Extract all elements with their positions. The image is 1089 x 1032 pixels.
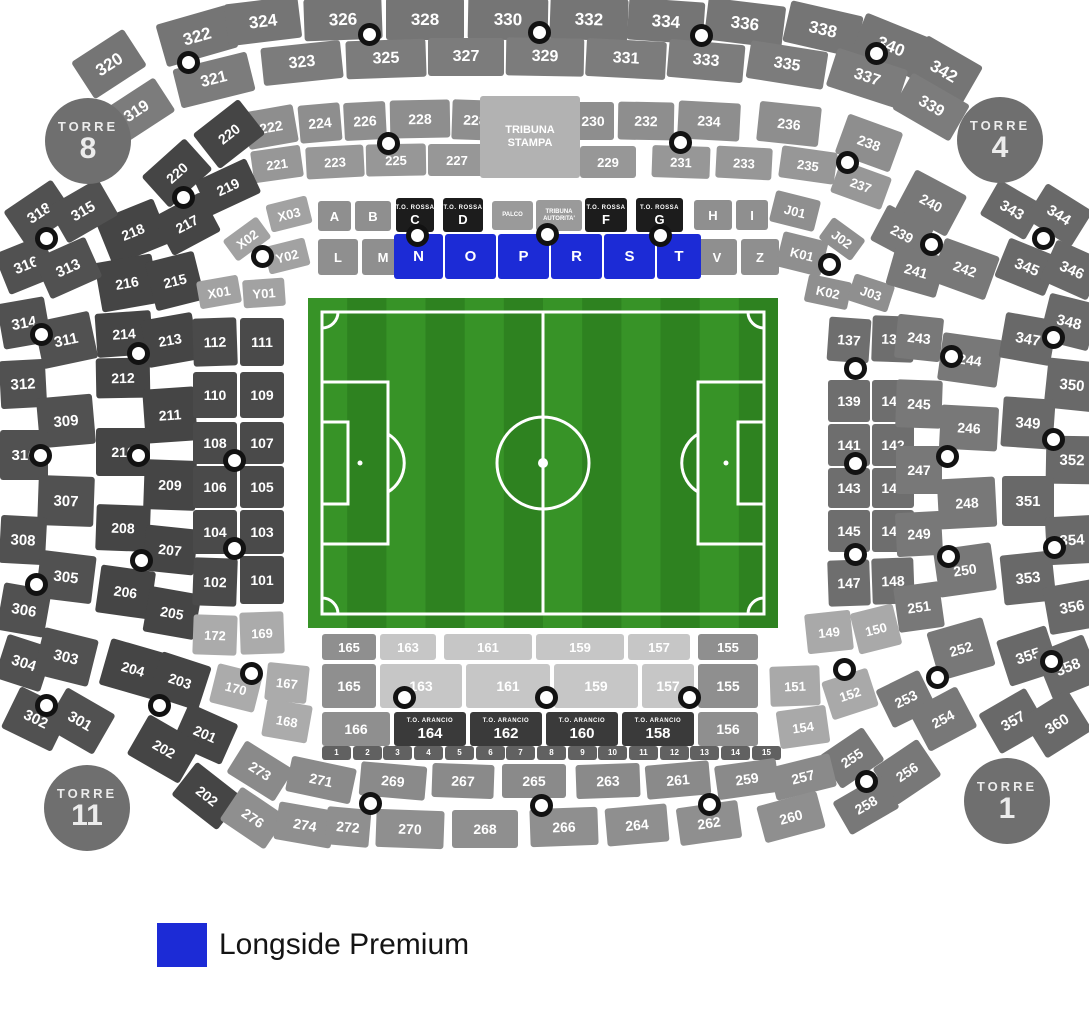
section-165[interactable]: 165 [322, 664, 376, 708]
section-o[interactable]: O [445, 234, 496, 279]
section-111[interactable]: 111 [240, 318, 284, 366]
section-143[interactable]: 143 [828, 468, 870, 508]
section-2[interactable]: 2 [353, 746, 382, 760]
seat-view-marker[interactable] [698, 793, 721, 816]
seat-view-marker[interactable] [936, 445, 959, 468]
seat-view-marker[interactable] [1042, 326, 1065, 349]
section-151[interactable]: 151 [769, 665, 820, 707]
section-167[interactable]: 167 [264, 662, 310, 704]
seat-view-marker[interactable] [844, 452, 867, 475]
seat-view-marker[interactable] [127, 444, 150, 467]
torre-8-label: TORRE8 [45, 98, 131, 184]
legend-label: Longside Premium [219, 928, 469, 962]
section-243[interactable]: 243 [894, 314, 944, 363]
section-112[interactable]: 112 [192, 317, 238, 367]
seat-view-marker[interactable] [148, 694, 171, 717]
section-215[interactable]: 215 [145, 251, 206, 312]
seat-view-marker[interactable] [1042, 428, 1065, 451]
section-160[interactable]: T.O. ARANCIO160 [546, 712, 618, 746]
section-v[interactable]: V [697, 239, 737, 275]
section-15[interactable]: 15 [752, 746, 781, 760]
section-271[interactable]: 271 [285, 756, 357, 805]
section-h[interactable]: H [694, 200, 732, 230]
section-235[interactable]: 235 [778, 145, 838, 184]
seat-view-marker[interactable] [844, 543, 867, 566]
seat-view-marker[interactable] [35, 227, 58, 250]
legend: Longside Premium [157, 922, 469, 968]
section-12[interactable]: 12 [660, 746, 689, 760]
section-229[interactable]: 229 [580, 146, 636, 178]
torre-4-label: TORRE4 [957, 97, 1043, 183]
section-palco[interactable]: PALCO [492, 201, 533, 230]
section-356[interactable]: 356 [1042, 579, 1089, 635]
section-325[interactable]: 325 [345, 39, 426, 80]
section-9[interactable]: 9 [568, 746, 597, 760]
seat-view-marker[interactable] [920, 233, 943, 256]
section-236[interactable]: 236 [756, 101, 822, 147]
seat-view-marker[interactable] [358, 23, 381, 46]
section-224[interactable]: 224 [297, 102, 342, 144]
seat-view-marker[interactable] [855, 770, 878, 793]
section-211[interactable]: 211 [142, 386, 198, 443]
section-245[interactable]: 245 [895, 379, 943, 429]
stadium-seating-map: 3203223243263283303323343363383403423193… [0, 0, 1089, 1032]
section-208[interactable]: 208 [95, 504, 151, 552]
section-147[interactable]: 147 [827, 559, 871, 606]
seat-view-marker[interactable] [1032, 227, 1055, 250]
section-4[interactable]: 4 [414, 746, 443, 760]
seat-view-marker[interactable] [30, 323, 53, 346]
section-263[interactable]: 263 [575, 763, 640, 799]
section-157[interactable]: 157 [628, 634, 690, 660]
section-328[interactable]: 328 [386, 0, 464, 40]
section-332[interactable]: 332 [549, 0, 628, 41]
stadium-map: 3203223243263283303323343363383403423193… [0, 0, 1089, 880]
section-158[interactable]: T.O. ARANCIO158 [622, 712, 694, 746]
section-13[interactable]: 13 [690, 746, 719, 760]
section-b[interactable]: B [355, 201, 391, 231]
section-323[interactable]: 323 [260, 40, 344, 86]
section-155[interactable]: 155 [698, 664, 758, 708]
seat-view-marker[interactable] [528, 21, 551, 44]
seat-view-marker[interactable] [649, 224, 672, 247]
seat-view-marker[interactable] [251, 245, 274, 268]
section-110[interactable]: 110 [193, 372, 237, 418]
section-265[interactable]: 265 [502, 764, 566, 798]
seat-view-marker[interactable] [865, 42, 888, 65]
section-248[interactable]: 248 [937, 477, 998, 530]
section-10[interactable]: 10 [598, 746, 627, 760]
seat-view-marker[interactable] [833, 658, 856, 681]
section-5[interactable]: 5 [445, 746, 474, 760]
section-161[interactable]: 161 [444, 634, 532, 660]
section-172[interactable]: 172 [192, 614, 237, 656]
section-8[interactable]: 8 [537, 746, 566, 760]
section-x03[interactable]: X03 [265, 195, 313, 232]
football-pitch [308, 298, 778, 628]
section-6[interactable]: 6 [476, 746, 505, 760]
seat-view-marker[interactable] [937, 545, 960, 568]
section-11[interactable]: 11 [629, 746, 658, 760]
section-267[interactable]: 267 [431, 763, 494, 799]
seat-view-marker[interactable] [669, 131, 692, 154]
seat-view-marker[interactable] [836, 151, 859, 174]
section-324[interactable]: 324 [224, 0, 303, 46]
section-l[interactable]: L [318, 239, 358, 275]
seat-view-marker[interactable] [25, 573, 48, 596]
seat-view-marker[interactable] [359, 792, 382, 815]
section-270[interactable]: 270 [375, 809, 444, 849]
seat-view-marker[interactable] [818, 253, 841, 276]
section-163[interactable]: 163 [380, 664, 462, 708]
section-329[interactable]: 329 [506, 37, 585, 76]
section-d[interactable]: T.O. ROSSAD [443, 198, 483, 232]
seat-view-marker[interactable] [536, 223, 559, 246]
legend-swatch-longside-premium [157, 923, 207, 967]
section-107[interactable]: 107 [240, 422, 284, 464]
section-y01[interactable]: Y01 [242, 278, 286, 309]
section-228[interactable]: 228 [390, 99, 451, 138]
section-106[interactable]: 106 [193, 466, 237, 508]
section-169[interactable]: 169 [239, 611, 284, 655]
section-i[interactable]: I [736, 200, 768, 230]
section-150[interactable]: 150 [850, 603, 903, 654]
seat-view-marker[interactable] [678, 686, 701, 709]
section-x01[interactable]: X01 [196, 275, 242, 310]
seat-view-marker[interactable] [240, 662, 263, 685]
section-221[interactable]: 221 [250, 145, 304, 184]
section-14[interactable]: 14 [721, 746, 750, 760]
section-105[interactable]: 105 [240, 466, 284, 508]
seat-view-marker[interactable] [127, 342, 150, 365]
section-227[interactable]: 227 [428, 144, 486, 176]
section-164[interactable]: T.O. ARANCIO164 [394, 712, 466, 746]
section-209[interactable]: 209 [143, 459, 197, 511]
section-tribuna-stampa[interactable]: TRIBUNASTAMPA [480, 96, 580, 178]
section-168[interactable]: 168 [261, 698, 313, 743]
section-1[interactable]: 1 [322, 746, 351, 760]
section-327[interactable]: 327 [428, 38, 504, 76]
section-166[interactable]: 166 [322, 712, 390, 746]
section-109[interactable]: 109 [240, 372, 284, 418]
section-103[interactable]: 103 [240, 510, 284, 554]
section-a[interactable]: A [318, 201, 351, 231]
seat-view-marker[interactable] [377, 132, 400, 155]
seat-view-marker[interactable] [844, 357, 867, 380]
section-163[interactable]: 163 [380, 634, 436, 660]
section-156[interactable]: 156 [698, 712, 758, 746]
section-139[interactable]: 139 [828, 380, 870, 422]
section-232[interactable]: 232 [618, 102, 675, 141]
seat-view-marker[interactable] [172, 186, 195, 209]
section-261[interactable]: 261 [645, 760, 712, 799]
seat-view-marker[interactable] [535, 686, 558, 709]
section-149[interactable]: 149 [804, 610, 854, 655]
section-159[interactable]: 159 [554, 664, 638, 708]
section-260[interactable]: 260 [756, 791, 826, 844]
seat-view-marker[interactable] [29, 444, 52, 467]
seat-view-marker[interactable] [177, 51, 200, 74]
seat-view-marker[interactable] [130, 549, 153, 572]
section-101[interactable]: 101 [240, 556, 284, 604]
torre-11-label: TORRE11 [44, 765, 130, 851]
seat-view-marker[interactable] [1043, 536, 1066, 559]
seat-view-marker[interactable] [223, 537, 246, 560]
section-162[interactable]: T.O. ARANCIO162 [470, 712, 542, 746]
section-102[interactable]: 102 [192, 557, 238, 607]
seat-view-marker[interactable] [223, 449, 246, 472]
seat-view-marker[interactable] [926, 666, 949, 689]
section-155[interactable]: 155 [698, 634, 758, 660]
section-331[interactable]: 331 [585, 38, 667, 80]
section-159[interactable]: 159 [536, 634, 624, 660]
section-264[interactable]: 264 [604, 803, 669, 846]
section-165[interactable]: 165 [322, 634, 376, 660]
section-s[interactable]: S [604, 234, 655, 279]
seat-view-marker[interactable] [690, 24, 713, 47]
section-223[interactable]: 223 [305, 145, 365, 180]
section-f[interactable]: T.O. ROSSAF [585, 198, 627, 232]
section-r[interactable]: R [551, 234, 602, 279]
section-251[interactable]: 251 [893, 581, 945, 633]
section-268[interactable]: 268 [452, 810, 518, 848]
section-k02[interactable]: K02 [804, 274, 853, 311]
torre-1-label: TORRE1 [964, 758, 1050, 844]
section-336[interactable]: 336 [704, 0, 787, 49]
seat-view-marker[interactable] [940, 345, 963, 368]
section-j01[interactable]: J01 [769, 190, 821, 232]
section-3[interactable]: 3 [383, 746, 412, 760]
section-154[interactable]: 154 [776, 705, 831, 750]
section-233[interactable]: 233 [715, 146, 773, 181]
section-z[interactable]: Z [741, 239, 779, 275]
section-7[interactable]: 7 [506, 746, 535, 760]
section-247[interactable]: 247 [896, 446, 942, 494]
section-137[interactable]: 137 [827, 317, 872, 364]
seat-view-marker[interactable] [406, 224, 429, 247]
section-259[interactable]: 259 [714, 758, 780, 800]
seat-view-marker[interactable] [393, 686, 416, 709]
seat-view-marker[interactable] [35, 694, 58, 717]
seat-view-marker[interactable] [530, 794, 553, 817]
seat-view-marker[interactable] [1040, 650, 1063, 673]
